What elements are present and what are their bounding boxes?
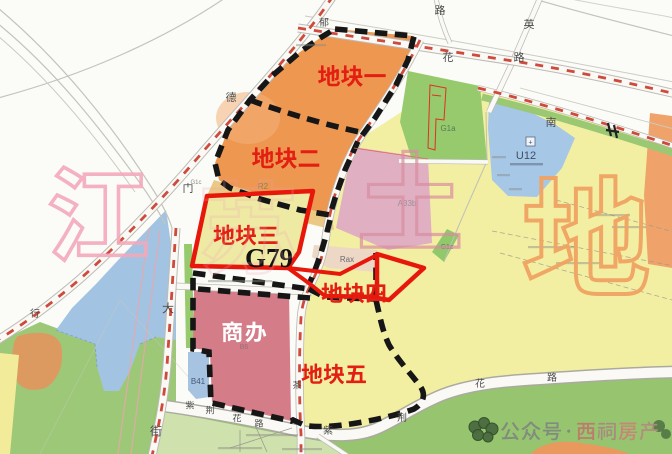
svg-text:G1a: G1a [440,124,456,133]
svg-text:Rax: Rax [340,255,354,264]
svg-text:B41: B41 [191,377,206,386]
svg-text:U12: U12 [516,150,536,162]
svg-text:A33b: A33b [398,199,417,208]
svg-text:+: + [528,140,532,147]
svg-text:B6: B6 [240,344,249,351]
